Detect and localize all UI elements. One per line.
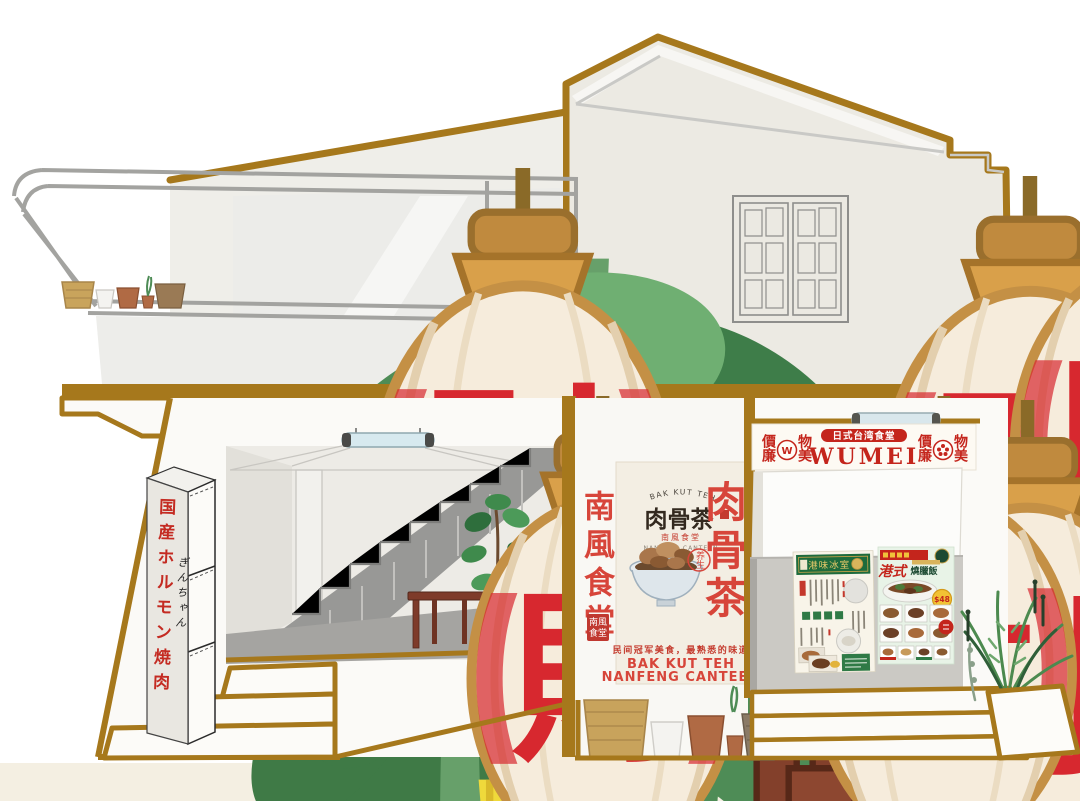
poster-tagline: 民间冠军美食，最熟悉的味道	[613, 644, 750, 656]
basket-pot	[62, 282, 94, 308]
seal-line2: 食堂	[589, 627, 607, 639]
slogan-left: 價廉	[760, 433, 777, 463]
white-pot	[96, 290, 114, 308]
pillar-shelf-face	[188, 480, 215, 744]
interior-left-wall	[226, 446, 292, 656]
seal-line1: 南風	[589, 616, 607, 628]
terracotta-pot	[117, 288, 139, 308]
shutter-panel	[752, 468, 962, 560]
sign-logo-letter: W	[781, 446, 792, 457]
right-steps	[752, 688, 1027, 758]
basket-pot	[584, 700, 648, 758]
upper-window	[733, 196, 848, 322]
menu-right-label: 燒臘飯	[910, 565, 937, 577]
sign-flower-circle	[934, 441, 953, 460]
menu-poster-left: 港味冰室	[793, 551, 875, 673]
menu-poster-right: 港式 燒臘飯 $48	[878, 547, 954, 664]
menu-price: $48	[934, 595, 950, 604]
coin-icon	[852, 558, 863, 569]
planter-box	[988, 686, 1078, 758]
slogan-right: 物美	[796, 433, 812, 463]
menu-left-header: 港味冰室	[808, 559, 850, 572]
pillar-sign-script: ぎんちゃん	[173, 556, 189, 632]
wumei-sign: 日式台湾食堂 WUMEI 價廉 W 物美 價廉 物美	[752, 424, 976, 470]
wall-seal: 南風 食堂	[587, 614, 609, 641]
sign-name: WUMEI	[808, 444, 919, 470]
white-pot	[651, 722, 683, 758]
poster-footer-2: NANFENG CANTEEN	[602, 670, 761, 685]
small-pot	[727, 736, 743, 758]
slogan-right: 物美	[952, 433, 968, 463]
small-pot	[142, 296, 154, 308]
pillar-sign: 国産ホルモン焼肉 ぎんちゃん	[147, 467, 215, 744]
slogan-left: 價廉	[916, 433, 933, 463]
scene-canvas: 財	[0, 0, 1080, 801]
poster-logo-sub: 南風食堂	[661, 532, 701, 542]
storefront-illustration: 財	[0, 0, 1080, 801]
menu-right-script: 港式	[878, 563, 908, 580]
sign-header-text: 日式台湾食堂	[832, 430, 895, 442]
rice-photo	[843, 579, 867, 603]
menu-red-badge	[939, 620, 954, 635]
poster-stamp-text: 养生	[694, 550, 705, 569]
terracotta-pot	[688, 716, 724, 758]
bak-kut-teh-poster: BAK KUT TEH 肉骨茶 南風食堂 NANFENG CANTEEN 肉骨茶…	[602, 462, 761, 685]
stone-pot	[155, 284, 185, 308]
